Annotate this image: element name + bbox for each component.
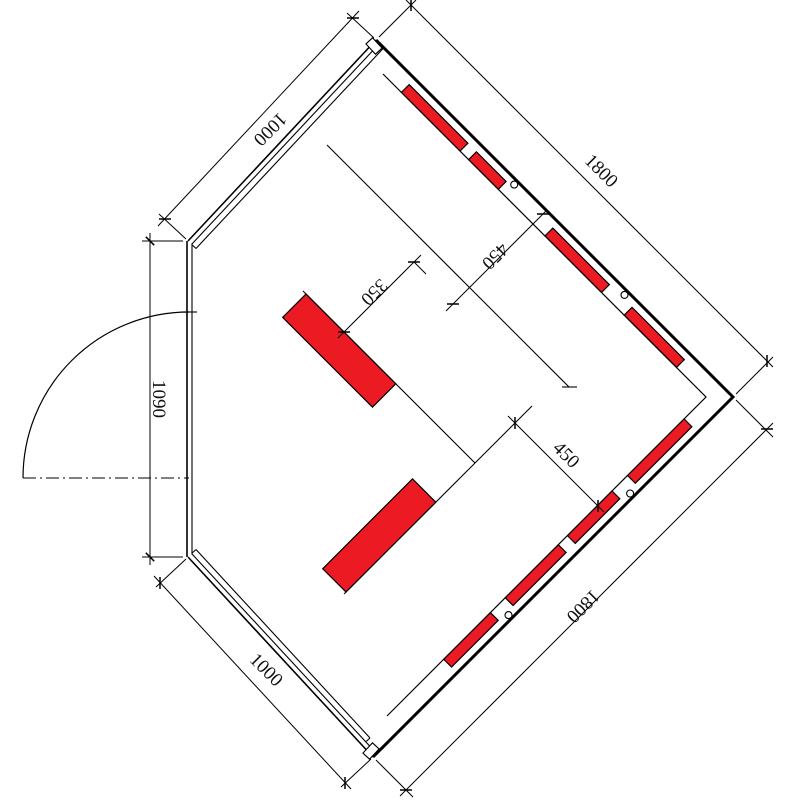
wall-fixture-circle	[511, 181, 518, 188]
glass-end-cap	[366, 738, 370, 741]
heater-element	[469, 152, 506, 189]
dim-label-top-left-wall: 1000	[249, 108, 291, 150]
door	[23, 312, 197, 478]
heater-element	[401, 85, 467, 151]
infrared-heater-panel-lower	[323, 479, 436, 592]
glass-end-cap	[192, 550, 196, 553]
wall-fixture-circle	[627, 490, 634, 497]
top-left-glass-panel	[196, 48, 384, 249]
dimension-1800-top-right: 1800	[379, 0, 773, 394]
dimension-1090-front: 1090	[142, 233, 183, 565]
wall-fixture-circle	[505, 612, 512, 619]
dim-label-bottom-left-wall: 1000	[245, 649, 287, 691]
glass-end-cap	[192, 245, 196, 248]
heater-element	[545, 228, 609, 292]
dim-label-interior-offset-bottom: 450	[548, 438, 583, 473]
dim-label-heater-clearance: 350	[356, 274, 391, 309]
dimension-450-bottom: 450	[508, 416, 604, 512]
dim-label-interior-offset-top: 450	[477, 238, 512, 273]
interior-heaters	[283, 294, 436, 592]
infrared-heater-panel-upper	[283, 294, 396, 407]
wall-fixture-circle	[621, 291, 628, 298]
floor-plan-canvas: 1800 1800 1000 1000 1090	[0, 0, 800, 800]
top-left-wall-inner	[192, 43, 380, 244]
heater-element	[628, 419, 692, 483]
back-walls-inner-rail	[383, 74, 706, 716]
dimension-1000-top-left: 1000	[158, 11, 374, 239]
dim-label-top-right-wall: 1800	[580, 150, 622, 192]
dim-label-front-wall: 1090	[148, 380, 169, 418]
dimension-350: 350	[338, 255, 426, 338]
top-left-wall-outer	[188, 40, 376, 241]
heater-bars-top-wall	[401, 85, 684, 368]
bottom-corner-joint	[363, 743, 379, 759]
dimension-1000-bottom-left: 1000	[154, 559, 371, 789]
dim-label-bottom-right-wall: 1800	[562, 585, 604, 627]
sauna-floor-plan: 1800 1800 1000 1000 1090	[0, 0, 800, 800]
